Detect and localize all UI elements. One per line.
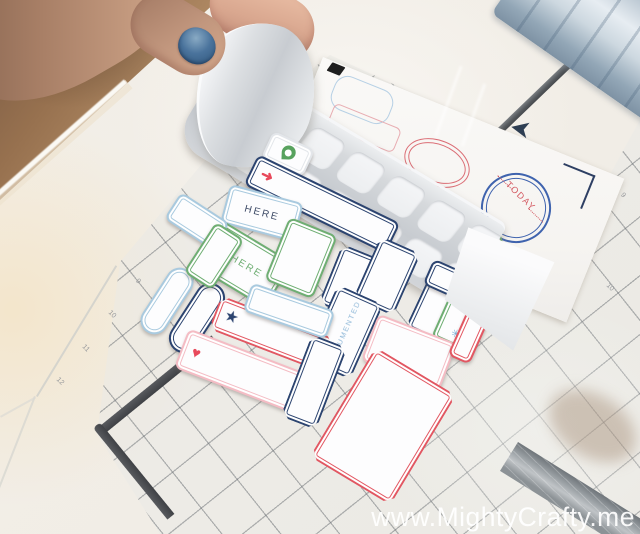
here-text: HERE — [243, 203, 280, 223]
today-dots — [528, 208, 543, 223]
heart-icon: ♥ — [189, 345, 203, 362]
backing-hole — [333, 149, 388, 197]
backing-hole — [414, 197, 469, 245]
today-label: TODAY — [504, 179, 538, 212]
craft-photo-scene: 9 10 11 12 9 10 ➤ TODAY ➜ — [0, 0, 640, 534]
red-arrow-icon: ➜ — [258, 167, 276, 186]
star-icon: ★ — [222, 308, 241, 328]
location-pin-icon — [281, 145, 295, 159]
watermark: www.MightyCrafty.me — [371, 502, 635, 533]
